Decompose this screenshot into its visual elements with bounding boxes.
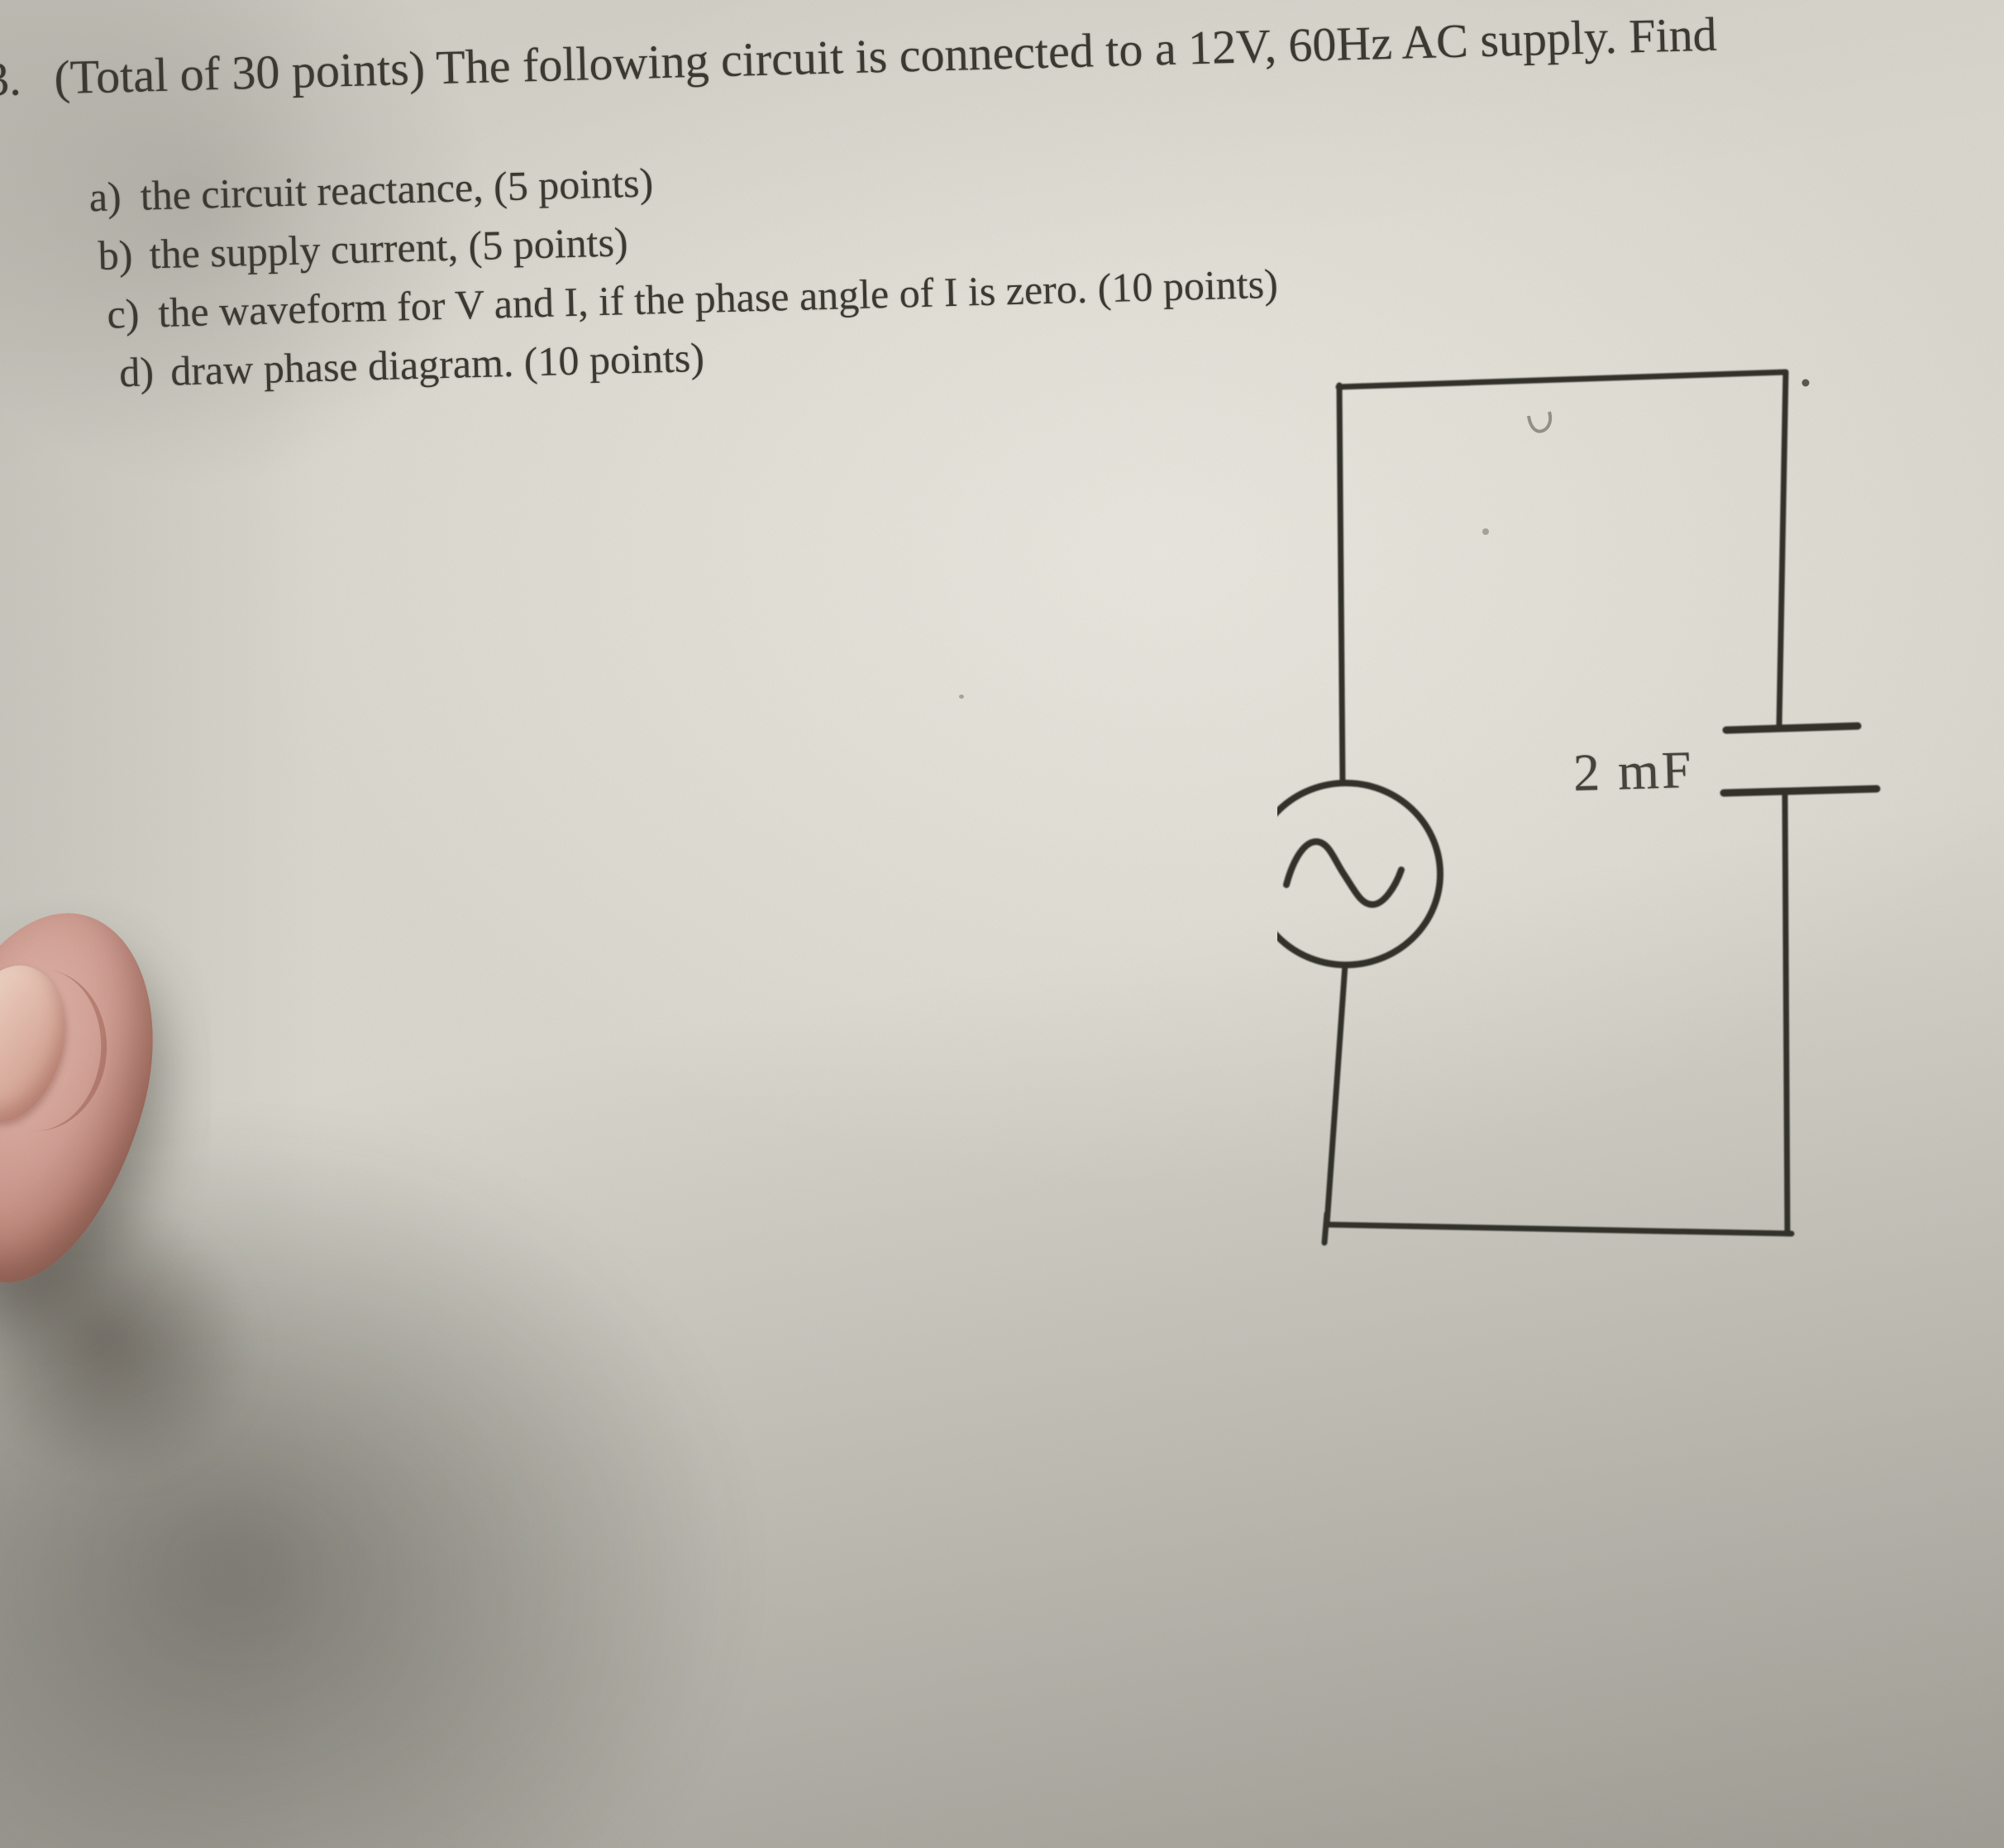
paper-shadow-bottom-right — [1240, 1240, 2004, 1848]
problem-number: 3. — [0, 52, 21, 106]
problem-statement: (Total of 30 points) The following circu… — [54, 7, 1718, 105]
paper-marks — [1482, 380, 1810, 536]
wire-left-tail — [1324, 1214, 1327, 1243]
item-label-b: b) — [98, 225, 150, 285]
wire-left-lower — [1327, 965, 1345, 1224]
wire-top — [1338, 372, 1786, 387]
item-label-d: d) — [118, 342, 171, 403]
wire-left-upper — [1339, 385, 1343, 782]
capacitor-bottom-plate — [1724, 789, 1877, 793]
paper-speck-3 — [959, 695, 964, 699]
circuit-diagram — [1277, 347, 1930, 1282]
wire-right-lower — [1785, 794, 1787, 1234]
capacitor-value-label: 2 mF — [1572, 743, 1694, 800]
sine-wave-icon — [1286, 842, 1401, 905]
wire-right-upper — [1779, 372, 1786, 727]
problem-heading: 3.(Total of 30 points) The following cir… — [0, 8, 1717, 107]
paper-speck-1 — [1482, 528, 1489, 535]
photographed-exam-page: 3.(Total of 30 points) The following cir… — [0, 0, 2004, 1848]
paper-speck-2 — [1802, 380, 1810, 387]
item-label-a: a) — [88, 167, 141, 227]
pencil-squiggle-mark — [1529, 412, 1550, 432]
item-label-c: c) — [107, 284, 160, 344]
capacitor-top-plate — [1726, 726, 1858, 730]
problem-items: a) the circuit reactance, (5 points) b) … — [88, 137, 1281, 403]
wire-bottom — [1326, 1225, 1792, 1234]
ac-source-symbol — [1277, 783, 1440, 965]
